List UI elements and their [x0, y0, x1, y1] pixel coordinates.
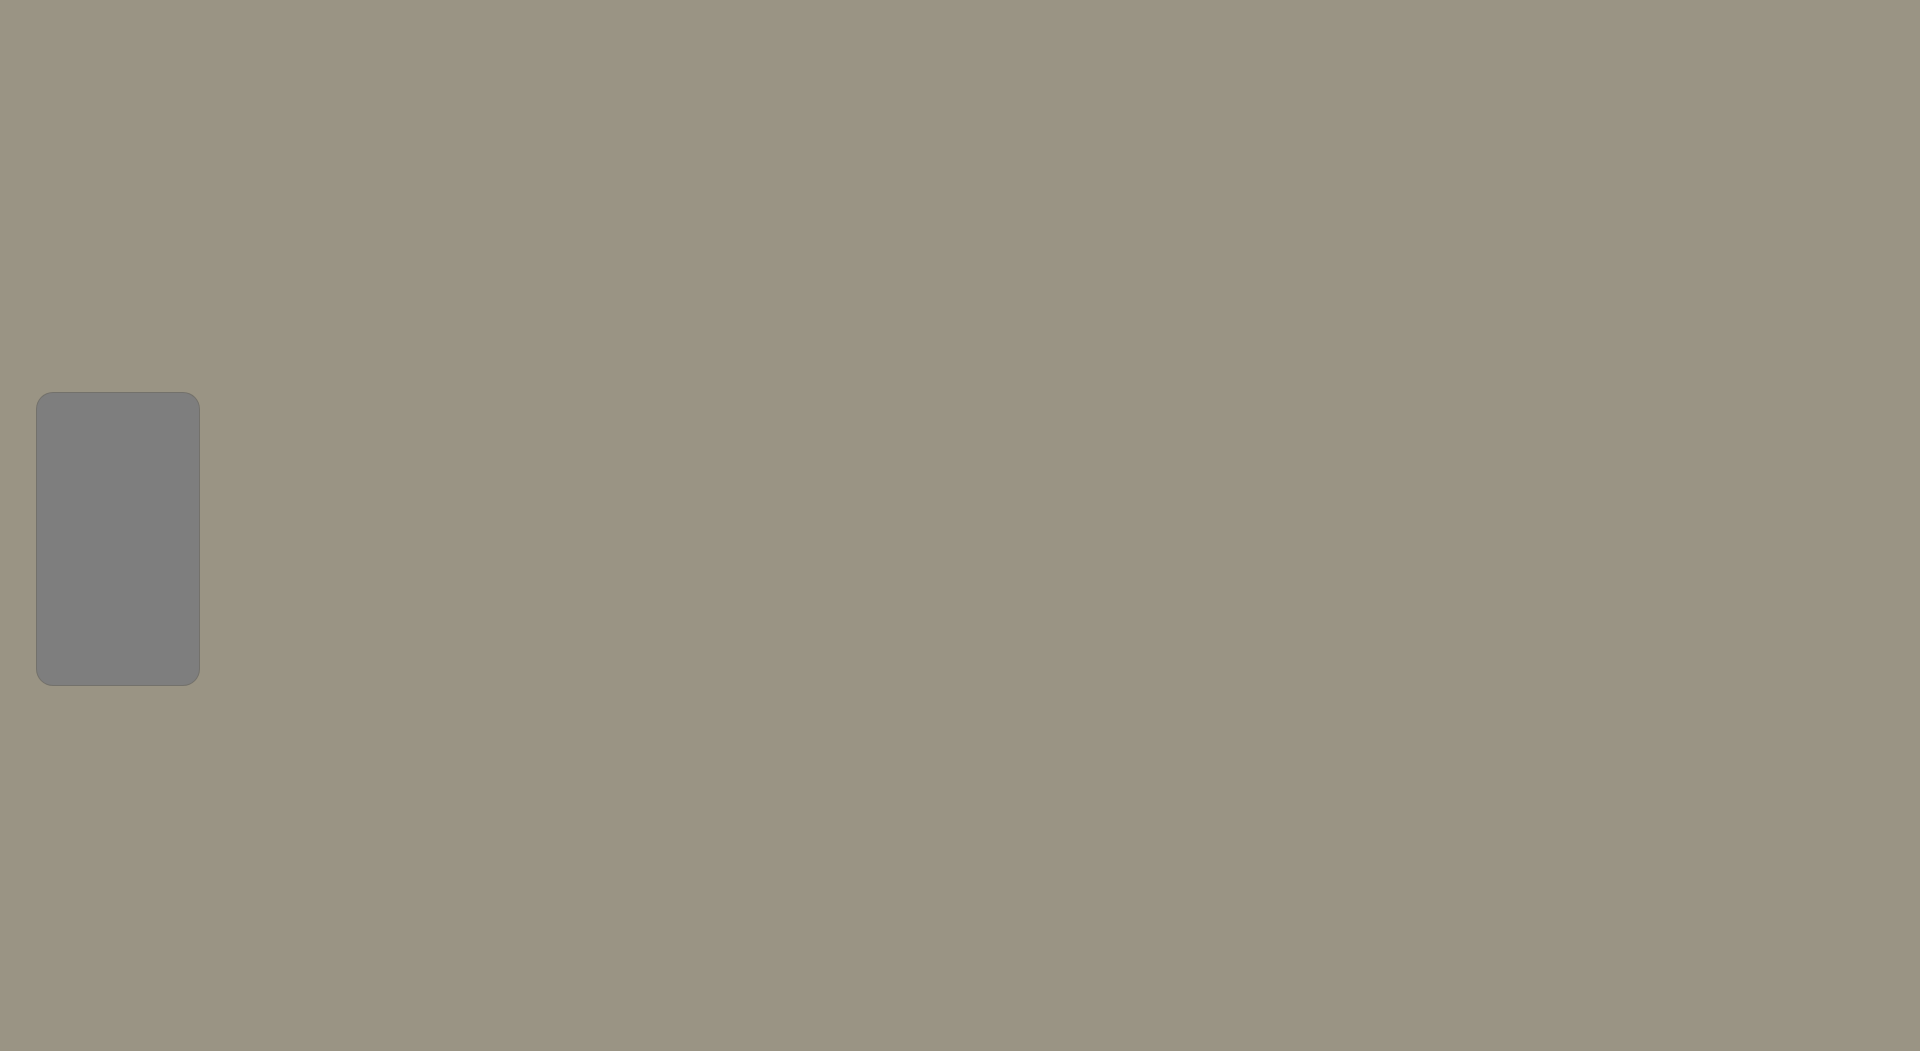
storm-water-map[interactable] — [0, 0, 1920, 1051]
legend-panel — [37, 393, 199, 685]
map-canvas — [0, 0, 1920, 1051]
legend-title — [37, 393, 199, 410]
